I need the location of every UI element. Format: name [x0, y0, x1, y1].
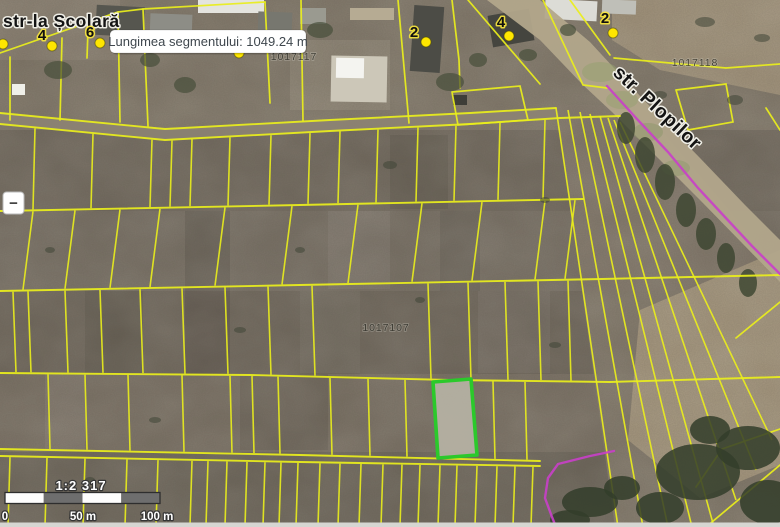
street-label-scolara: str-la Școlară — [3, 11, 120, 31]
scale-segment — [121, 493, 160, 504]
marker-dot[interactable] — [504, 31, 514, 41]
building — [350, 8, 394, 20]
marker-dot[interactable] — [608, 28, 618, 38]
scale-bar — [5, 493, 160, 504]
marker-dot[interactable] — [95, 38, 105, 48]
page-bottom-strip — [0, 523, 780, 527]
ground-grain-texture — [0, 0, 780, 527]
scale-tick-0: 0 — [2, 511, 8, 523]
building — [453, 95, 467, 105]
building — [12, 84, 25, 95]
marker-count: 4 — [38, 27, 47, 44]
building — [300, 8, 326, 24]
marker-dot[interactable] — [0, 39, 8, 49]
scale-tick-50: 50 m — [70, 511, 96, 523]
marker-dot[interactable] — [47, 41, 57, 51]
selected-parcel[interactable] — [433, 379, 477, 458]
map-viewport[interactable]: 1017117 1017118 1017107 str-la Școlară s… — [0, 0, 780, 527]
zoom-out-icon: − — [9, 195, 18, 212]
parcel-number-1017118: 1017118 — [672, 57, 718, 69]
map-canvas[interactable]: 1017117 1017118 1017107 str-la Școlară s… — [0, 0, 780, 527]
tooltip-label: Lungimea segmentului: 1049.24 m — [108, 34, 307, 49]
scale-segment — [44, 493, 83, 504]
building — [336, 58, 364, 78]
zoom-out-button[interactable]: − — [3, 192, 24, 214]
marker-count: 2 — [601, 10, 609, 27]
scale-segment — [5, 493, 44, 504]
scale-segment — [83, 493, 122, 504]
marker-dot[interactable] — [421, 37, 431, 47]
marker-count: 2 — [410, 24, 418, 41]
measurement-tooltip: Lungimea segmentului: 1049.24 m — [108, 30, 307, 55]
marker-count: 4 — [497, 14, 506, 31]
marker-count: 6 — [86, 24, 94, 41]
scale-tick-100: 100 m — [141, 511, 174, 523]
parcel-number-1017107: 1017107 — [362, 322, 409, 334]
scale-ratio: 1:2 317 — [55, 478, 106, 493]
